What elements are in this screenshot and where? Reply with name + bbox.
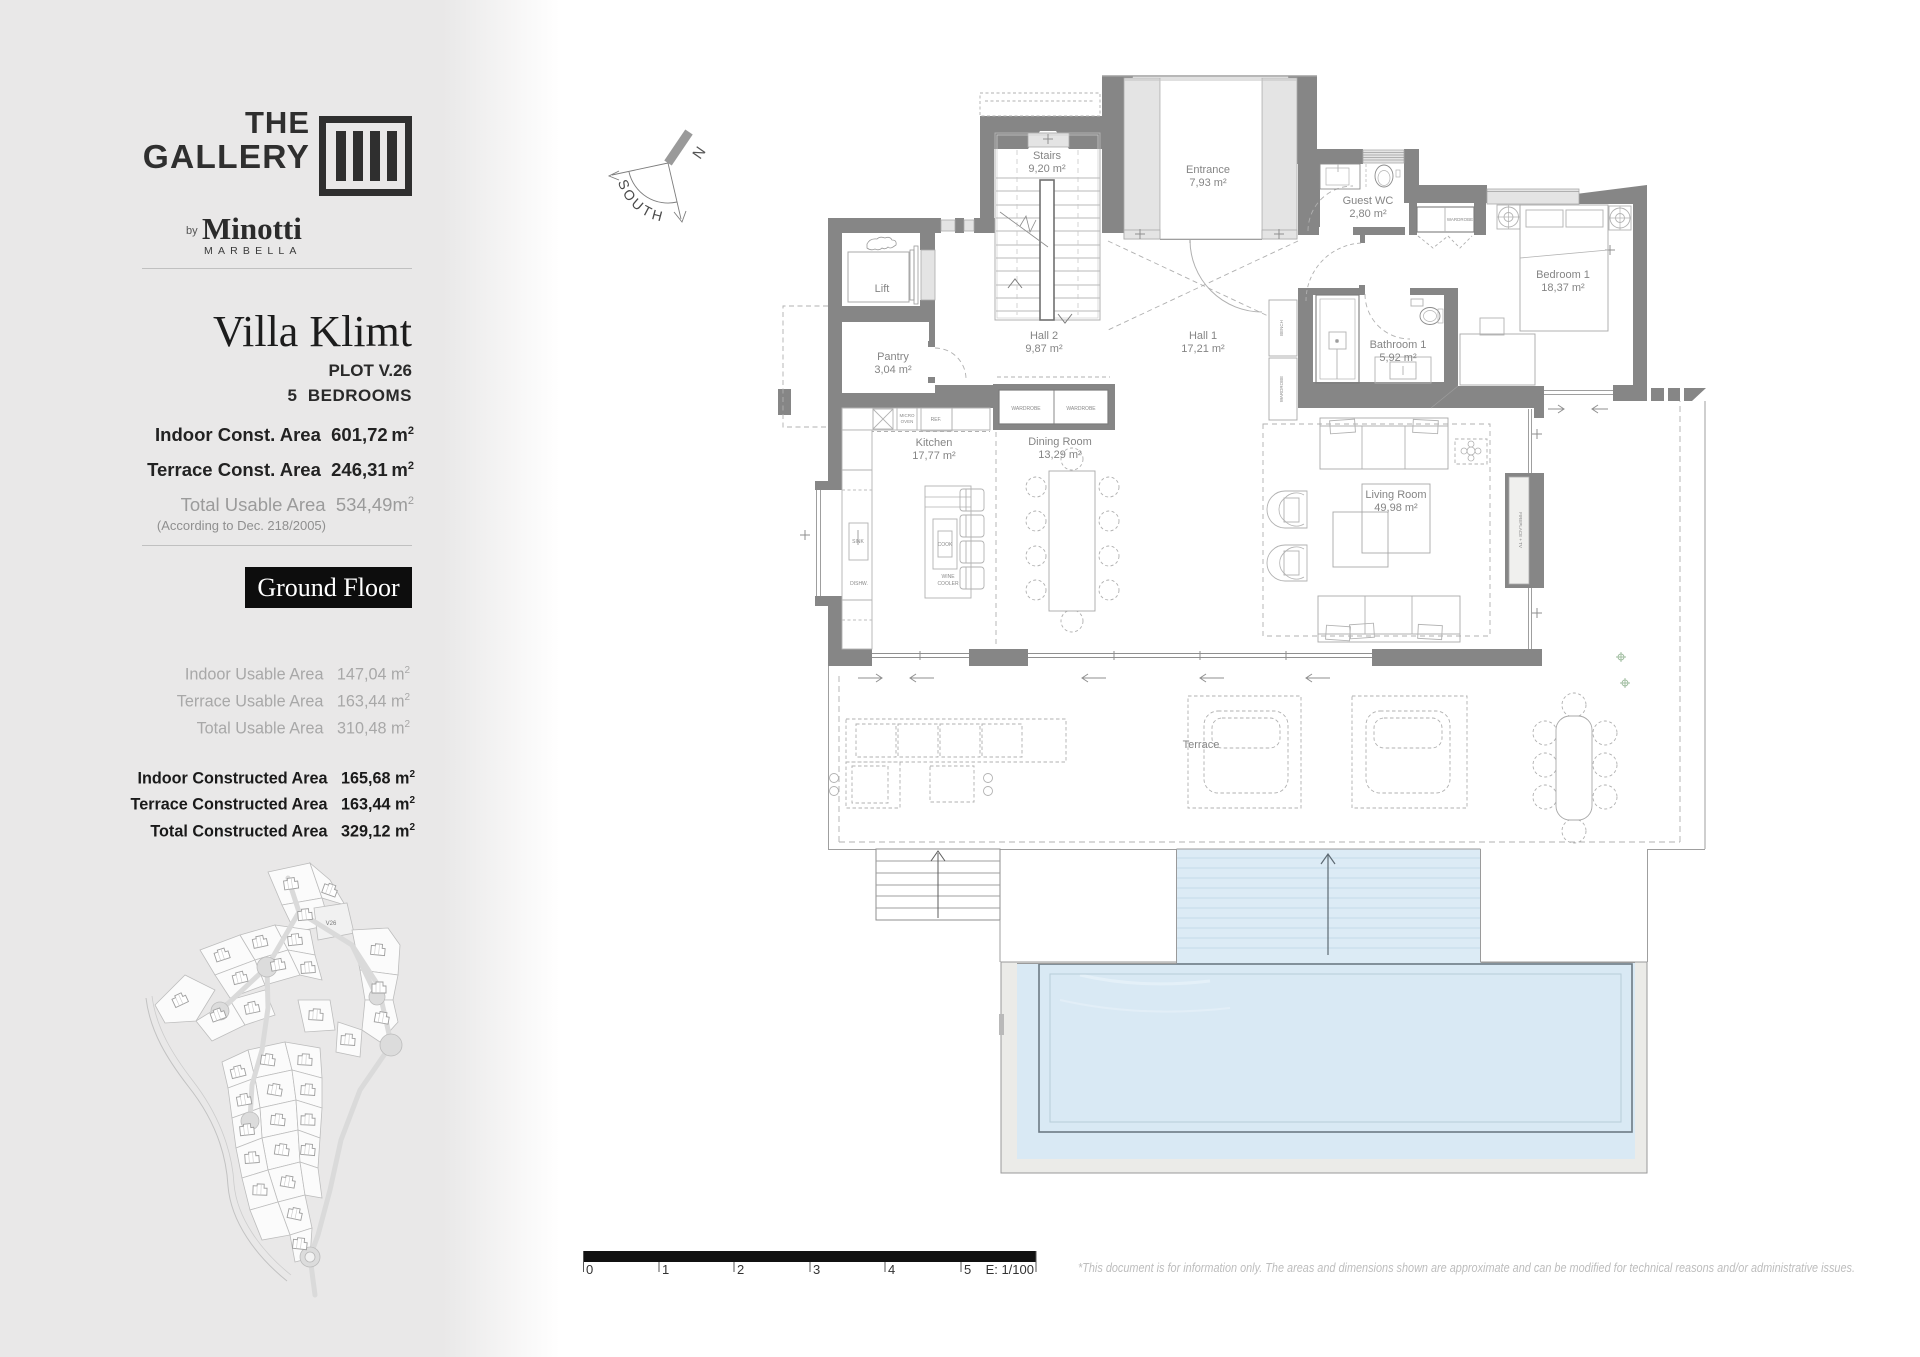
- svg-text:OVEN: OVEN: [901, 419, 914, 424]
- svg-text:V26: V26: [326, 921, 337, 927]
- svg-text:DISHW.: DISHW.: [850, 581, 868, 587]
- svg-text:3: 3: [813, 1262, 820, 1277]
- svg-text:*This document is for informat: *This document is for information only. …: [1078, 1261, 1855, 1275]
- svg-text:Entrance: Entrance: [1186, 164, 1230, 176]
- svg-text:3,04 m²: 3,04 m²: [874, 364, 912, 376]
- svg-text:Bedroom 1: Bedroom 1: [1536, 269, 1590, 281]
- svg-text:REF.: REF.: [931, 417, 942, 423]
- svg-text:Hall 2: Hall 2: [1030, 330, 1058, 342]
- svg-text:Dining Room: Dining Room: [1028, 436, 1092, 448]
- svg-text:FIREPLACE + TV: FIREPLACE + TV: [1518, 512, 1523, 548]
- svg-text:Living Room: Living Room: [1365, 489, 1426, 501]
- svg-text:18,37 m²: 18,37 m²: [1541, 282, 1585, 294]
- svg-text:Kitchen: Kitchen: [916, 437, 953, 449]
- svg-text:Guest WC: Guest WC: [1343, 195, 1394, 207]
- svg-text:7,93 m²: 7,93 m²: [1189, 177, 1227, 189]
- svg-text:COOK: COOK: [938, 542, 953, 548]
- svg-text:9,20 m²: 9,20 m²: [1028, 163, 1066, 175]
- svg-text:E: 1/100: E: 1/100: [986, 1262, 1034, 1277]
- svg-text:0: 0: [586, 1262, 593, 1277]
- svg-text:BENCH: BENCH: [1279, 320, 1284, 336]
- svg-text:49,98 m²: 49,98 m²: [1374, 502, 1418, 514]
- svg-text:Terrace: Terrace: [1183, 739, 1220, 751]
- svg-text:2,80 m²: 2,80 m²: [1349, 208, 1387, 220]
- svg-text:4: 4: [888, 1262, 895, 1277]
- svg-text:COOLER: COOLER: [937, 581, 959, 587]
- svg-text:Stairs: Stairs: [1033, 150, 1062, 162]
- svg-text:Lift: Lift: [875, 283, 890, 295]
- svg-text:Hall 1: Hall 1: [1189, 330, 1217, 342]
- svg-text:5,92 m²: 5,92 m²: [1379, 352, 1417, 364]
- svg-text:Pantry: Pantry: [877, 351, 909, 363]
- svg-text:SOUTH: SOUTH: [615, 177, 667, 225]
- svg-text:5: 5: [964, 1262, 971, 1277]
- svg-text:17,21 m²: 17,21 m²: [1181, 343, 1225, 355]
- svg-text:N: N: [689, 144, 709, 163]
- svg-text:WARDROBE: WARDROBE: [1279, 376, 1284, 402]
- svg-text:1: 1: [662, 1262, 669, 1277]
- svg-text:Bathroom 1: Bathroom 1: [1370, 339, 1427, 351]
- svg-text:WARDROBE: WARDROBE: [1066, 406, 1096, 412]
- svg-text:SINK: SINK: [852, 539, 864, 545]
- svg-text:2: 2: [737, 1262, 744, 1277]
- svg-text:WARDROBE: WARDROBE: [1011, 406, 1041, 412]
- svg-text:WARDROBE: WARDROBE: [1447, 217, 1473, 222]
- svg-text:MICRO: MICRO: [900, 413, 915, 418]
- svg-text:13,29 m²: 13,29 m²: [1038, 449, 1082, 461]
- svg-text:9,87 m²: 9,87 m²: [1025, 343, 1063, 355]
- svg-text:WINE: WINE: [941, 574, 955, 580]
- svg-text:17,77 m²: 17,77 m²: [912, 450, 956, 462]
